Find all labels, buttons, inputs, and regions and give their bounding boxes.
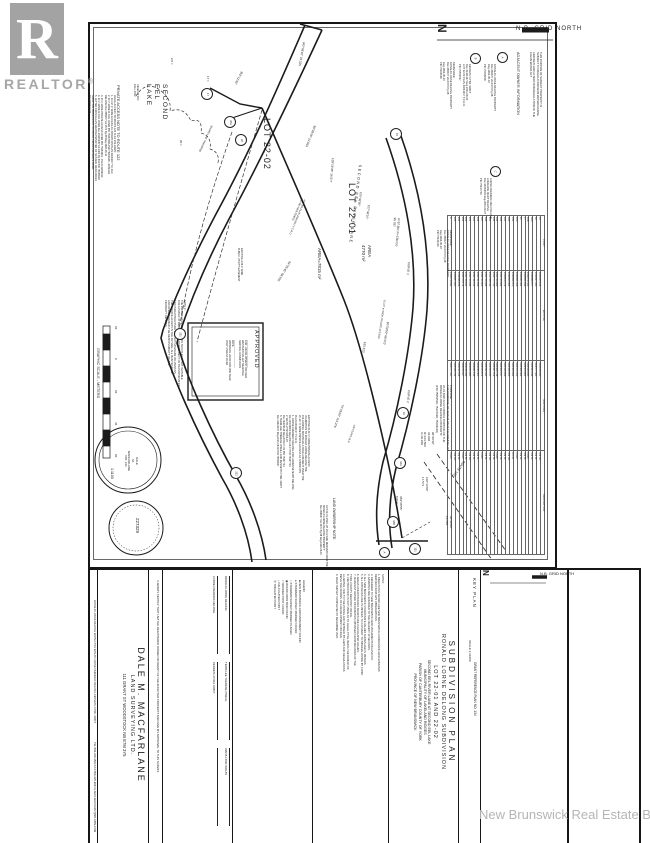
scale-ratio: 1:1100 xyxy=(110,468,114,479)
approved-title: APPROVED xyxy=(252,330,259,369)
owner-signature-line: TERRI-LEE THERESE O'NEILL xyxy=(224,662,230,740)
point-table-row: 1662411759.8487424332.941SM PL xyxy=(483,216,487,555)
owner-signature-line: KENNETH CYRIL SWIFT xyxy=(212,662,218,740)
curve-2-label: CURVE 2 xyxy=(405,390,410,403)
surveyor-company-block: DALE M. MACFARLANE LAND SURVEYING LTD. 1… xyxy=(123,592,147,838)
bearing-107-36: 107°36'10" xyxy=(364,204,370,219)
survey-point-16B: 16B xyxy=(387,516,399,528)
survey-point-17: 17 xyxy=(201,88,213,100)
survey-point-A: A xyxy=(379,547,390,558)
dist-165: 165.513 xyxy=(361,341,366,352)
legend-block: LEGEND: ■ NEW BRUNSWICK GRID MONUMENT FO… xyxy=(273,580,307,835)
point-table-header: POINT xyxy=(541,216,545,271)
registered-mark-icon: ® xyxy=(88,78,96,85)
plan-parish-county: PARISH OF CANTERBURY COUNTY OF YORK xyxy=(417,574,422,830)
seal-2-text: 227329 xyxy=(134,518,140,533)
survey-point-B: B xyxy=(470,53,481,64)
company-name: DALE M. MACFARLANE xyxy=(136,592,146,838)
lot-22-01-area: AREA 4770 m² xyxy=(361,245,372,262)
scale-tick-1: 22 xyxy=(113,326,117,329)
point-table-row: 152411935.1547424618.040SM FD xyxy=(537,216,541,555)
lot-22-02-label: LOT 22-02 xyxy=(261,118,272,170)
survey-notes-block: NOTES: 1. DIRECTIONS SHOWN ARE NEW BRUNS… xyxy=(335,574,384,836)
scale-tick-3: 22 xyxy=(113,390,117,393)
plan-location-road: SECOND EEL RIVER LANE AT SECOND EEL LAKE xyxy=(427,574,432,830)
point-table-row: 2232411705.1727424229.327CALC xyxy=(459,216,463,555)
point-table-row: 2222411714.1187424246.596SM PL xyxy=(463,216,467,555)
realtor-logo: R xyxy=(10,3,64,75)
survey-point-A: A xyxy=(497,52,508,63)
curve-1-label: CURVE 1 xyxy=(405,262,410,275)
company-subtitle: LAND SURVEYING LTD. xyxy=(129,592,135,838)
scale-tick-5: 66 xyxy=(113,454,117,457)
survey-point-20: 20 xyxy=(235,134,247,146)
adjacent-owner-b: KENNETH CYRIL SWIFT Doc.41421147 Reg.202… xyxy=(458,64,471,107)
point-table-row: 172411851.6487424505.631SM PL xyxy=(521,216,525,555)
owner-names-strip: RONALD LORNE DELONG WAITA LYNN WOLAY LOR… xyxy=(93,600,96,723)
keyplan-north-label: N.B. GRID NORTH xyxy=(540,571,574,576)
survey-point-16A: 16A xyxy=(394,457,406,469)
adjacent-owner-c: LORNE FREDERIC DELONG AND LORRAINE MARY … xyxy=(479,178,492,219)
keyplan-north-n: N xyxy=(480,570,490,576)
point-table-row: 20A2411831.4167424471.093CALC xyxy=(514,216,518,555)
owner-certification-text: I HEREBY CERTIFY THAT I AM THE REGISTERE… xyxy=(156,580,160,820)
point-table-row: 2202411732.0107424281.134SM PL xyxy=(471,216,475,555)
survey-point-221: 221 xyxy=(174,328,186,340)
survey-point-151: 151 xyxy=(409,543,421,555)
realtor-wordmark: REALTOR® xyxy=(4,76,96,92)
point-table-row: 2242411696.2267424212.058SM PL xyxy=(455,216,459,555)
ownership-benefit-note: EXISTING 20.117 m WIDE PRIVATE ACCESS IN… xyxy=(276,415,310,490)
curve-1-data: A=97.801 R=138.000 95.787 xyxy=(390,217,400,246)
survey-point-15: 15 xyxy=(390,128,402,140)
easement-note: EXISTING 4.26 m WIDE PUBLIC UTILITY EASE… xyxy=(237,248,243,281)
land-ownership-body: LOT 22-01 AND LOT 22-02 ARE DERIVED FROM… xyxy=(319,505,328,567)
plan-title: SUBDIVISION PLAN xyxy=(446,574,456,830)
survey-point-16: 16 xyxy=(397,407,409,419)
grid-north-top: N.B. GRID NORTH xyxy=(516,26,582,34)
purpose-note: PURPOSE: THE PURPOSE OF THIS PLAN IS TO … xyxy=(435,385,452,451)
scale-tick-4: 44 xyxy=(113,422,117,425)
bearing-128: 128°16'35" 14.577 xyxy=(328,158,334,183)
point-table-row: 1612411804.5787424419.286SM PL xyxy=(502,216,506,555)
survey-point-20A: 20A xyxy=(224,116,236,128)
bearing-100-33: 100°33'00" 17.571 xyxy=(421,477,429,492)
adjacent-owner-a: RONALD LORNE DELONG PROPERTY Doc.356637 … xyxy=(483,64,496,111)
point-table-row: 162411897.3237424577.563SM PL xyxy=(533,216,537,555)
plan-title-block: SUBDIVISION PLAN RONALD LORNE DELONG SUB… xyxy=(413,574,456,830)
point-coordinate-table: POINTEASTINGNORTHINGDESCRIPTION152411935… xyxy=(447,215,545,555)
point-table-row: 1682411741.9567424298.403SM PL xyxy=(475,216,479,555)
tick-2-5: 2.5 ± xyxy=(169,58,173,65)
owner-signature-line xyxy=(212,748,218,826)
point-table-row: 1622411795.6327424402.017SM PL xyxy=(498,216,502,555)
point-table-row: 16B2411879.4107424543.025CALC xyxy=(525,216,529,555)
point-table-header: NORTHING xyxy=(541,360,545,451)
clean-water-note: THIS PORTION OF SUBJECT PROPERTY IS SUBJ… xyxy=(529,52,543,117)
lot-22-02-area: AREA=7815 m² xyxy=(316,248,322,279)
realtor-logo-letter: R xyxy=(16,10,58,68)
tick-17: 17 ± xyxy=(205,76,209,82)
keyplan-grant: GRANT REFERENCE PLAN NO. 134 xyxy=(473,662,477,716)
point-table-row: 16A2411888.3777424560.294SM PL xyxy=(529,216,533,555)
graphic-scale-title: GRAPHIC SCALE - METERS xyxy=(95,348,100,398)
point-table-row: 2212411723.0647424263.865SM FD xyxy=(467,216,471,555)
plan-subtitle: RONALD LORNE DELONG SUBDIVISION xyxy=(438,574,445,830)
seal-1-text: DALE M. MACFARLANE NO. 343 xyxy=(123,444,138,478)
keyplan-scale: SCALE 1:31680 xyxy=(467,640,471,662)
point-table-row: 1652411768.7947424350.210SM FD xyxy=(486,216,490,555)
survey-point-C: C xyxy=(490,166,501,177)
plan-province: PROVINCE OF NEW BRUNSWICK xyxy=(413,574,418,830)
scanned-subdivision-plan: POINTEASTINGNORTHINGDESCRIPTION152411935… xyxy=(0,0,650,843)
point-table-row: 202411840.3627424488.362SM PL xyxy=(517,216,521,555)
survey-point-222: 222 xyxy=(230,467,242,479)
curve-2-data: 90°20'30" 36.094 R=103.500 A=36.209 xyxy=(419,432,434,447)
point-table-row: 1602411813.5247424436.555SM FD xyxy=(506,216,510,555)
plan-lots: LOT 22-01 AND 22-02 xyxy=(431,574,438,830)
bearing-359: 359°28'55" 8.010 xyxy=(395,496,403,511)
lake-name: SECOND EEL LAKE xyxy=(144,84,168,121)
company-address: 111 GRANT ST WOODSTOCK NB E7M 3Y5 xyxy=(123,592,128,838)
private-access-note-header: PRIVATE ACCESS NOTE TO ROUTE 122 xyxy=(116,85,121,161)
remainder-note-2: REMAINDER RONALD LORNE DELONG PROPERTY D… xyxy=(436,230,452,277)
adjacent-owner-header: ADJACENT OWNER INFORMATION xyxy=(515,52,520,115)
point-table-row: 1642411777.7407424367.479SM PL xyxy=(490,216,494,555)
plan-municipality: MUNICIPALITY OF LAKELAND RIDGES xyxy=(422,574,427,830)
company-contact: TEL:506-328-3563 FAX:506-325-9004 E-MAIL… xyxy=(93,742,96,832)
bearing-93: 93°30'00" 14.383 xyxy=(445,516,453,529)
point-table-row: 1672411750.9027424315.672CALC xyxy=(479,216,483,555)
board-watermark: New Brunswick Real Estate Board xyxy=(479,807,650,822)
grid-north-n: N xyxy=(434,24,449,33)
note-c: NOTE C: THE PRIVATE ACCESS SHOWN ON THIS… xyxy=(163,300,186,387)
owner-signature-line: LORNE FREDERIC DELONG xyxy=(212,576,218,654)
point-table-row: 1632411786.6867424384.748CALC xyxy=(494,216,498,555)
owner-signature-line: WAITA LYNN WOLAY xyxy=(224,748,230,826)
point-table-header: EASTING xyxy=(541,270,545,360)
keyplan-label: KEY PLAN xyxy=(471,578,477,608)
land-ownership-header: LAND OWNERSHIP NOTE: xyxy=(332,498,336,540)
vegetation-note: VEGETATION FALL 2022 xyxy=(133,84,139,100)
point-table-header: DESCRIPTION xyxy=(541,451,545,555)
point-table-row: 1512411822.4707424453.824IP FD xyxy=(510,216,514,555)
tick-20: 20 ± xyxy=(178,140,182,146)
private-access-note-body: LEGAL ACCESS TO ROUTE 122 IS AS FOLLOWS:… xyxy=(88,95,116,181)
owner-signature-grid: RONALD LORNE DELONGTERRI-LEE THERESE O'N… xyxy=(212,576,230,826)
approved-body: ____________________ FOR - DEVELOPMENT O… xyxy=(225,340,250,380)
remainder-note-1: REMAINDER RONALD LORNE DELONG PROPERTY D… xyxy=(439,62,455,109)
owner-signature-line: RONALD LORNE DELONG xyxy=(224,576,230,654)
scale-tick-2: 0 xyxy=(113,358,117,360)
